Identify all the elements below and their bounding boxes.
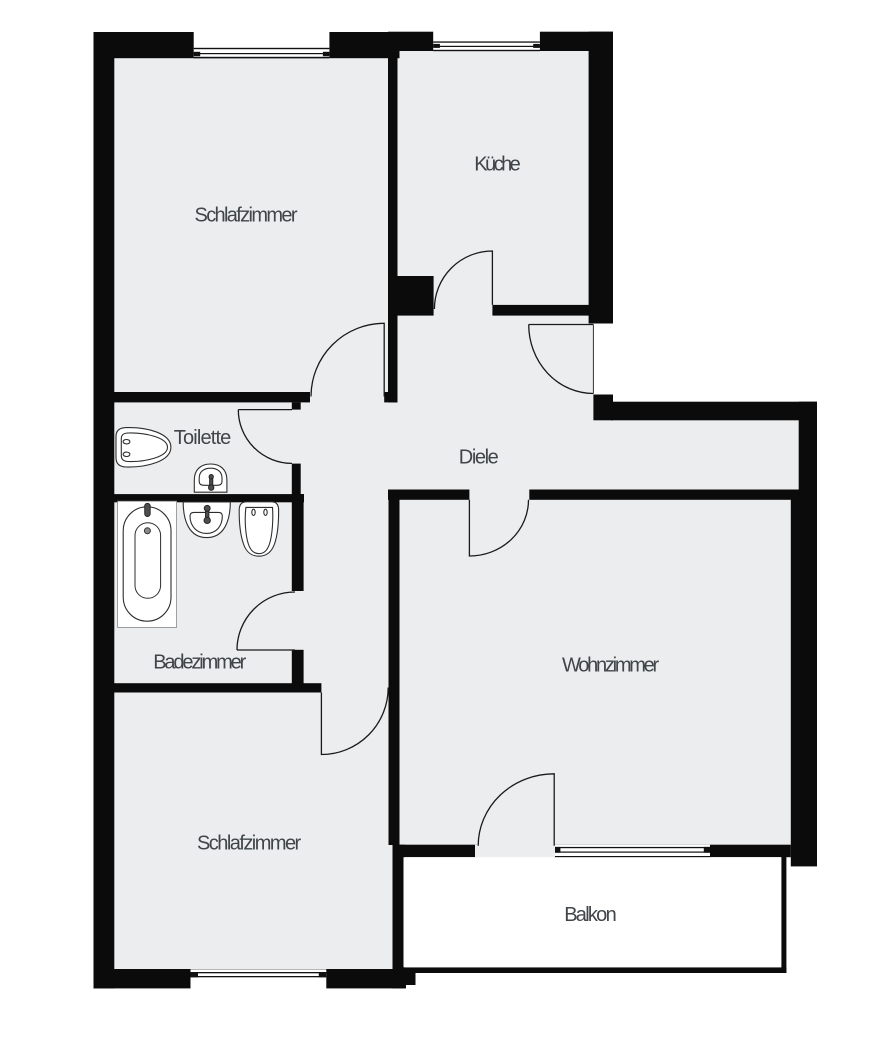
svg-text:Balkon: Balkon	[564, 904, 617, 926]
svg-text:Schlafzimmer: Schlafzimmer	[197, 832, 302, 854]
svg-text:Toilette: Toilette	[174, 427, 232, 449]
svg-text:Wohnzimmer: Wohnzimmer	[562, 654, 660, 676]
svg-text:Küche: Küche	[474, 153, 521, 175]
svg-text:Diele: Diele	[459, 447, 499, 469]
svg-text:Badezimmer: Badezimmer	[153, 652, 246, 674]
svg-text:Schlafzimmer: Schlafzimmer	[195, 204, 298, 226]
